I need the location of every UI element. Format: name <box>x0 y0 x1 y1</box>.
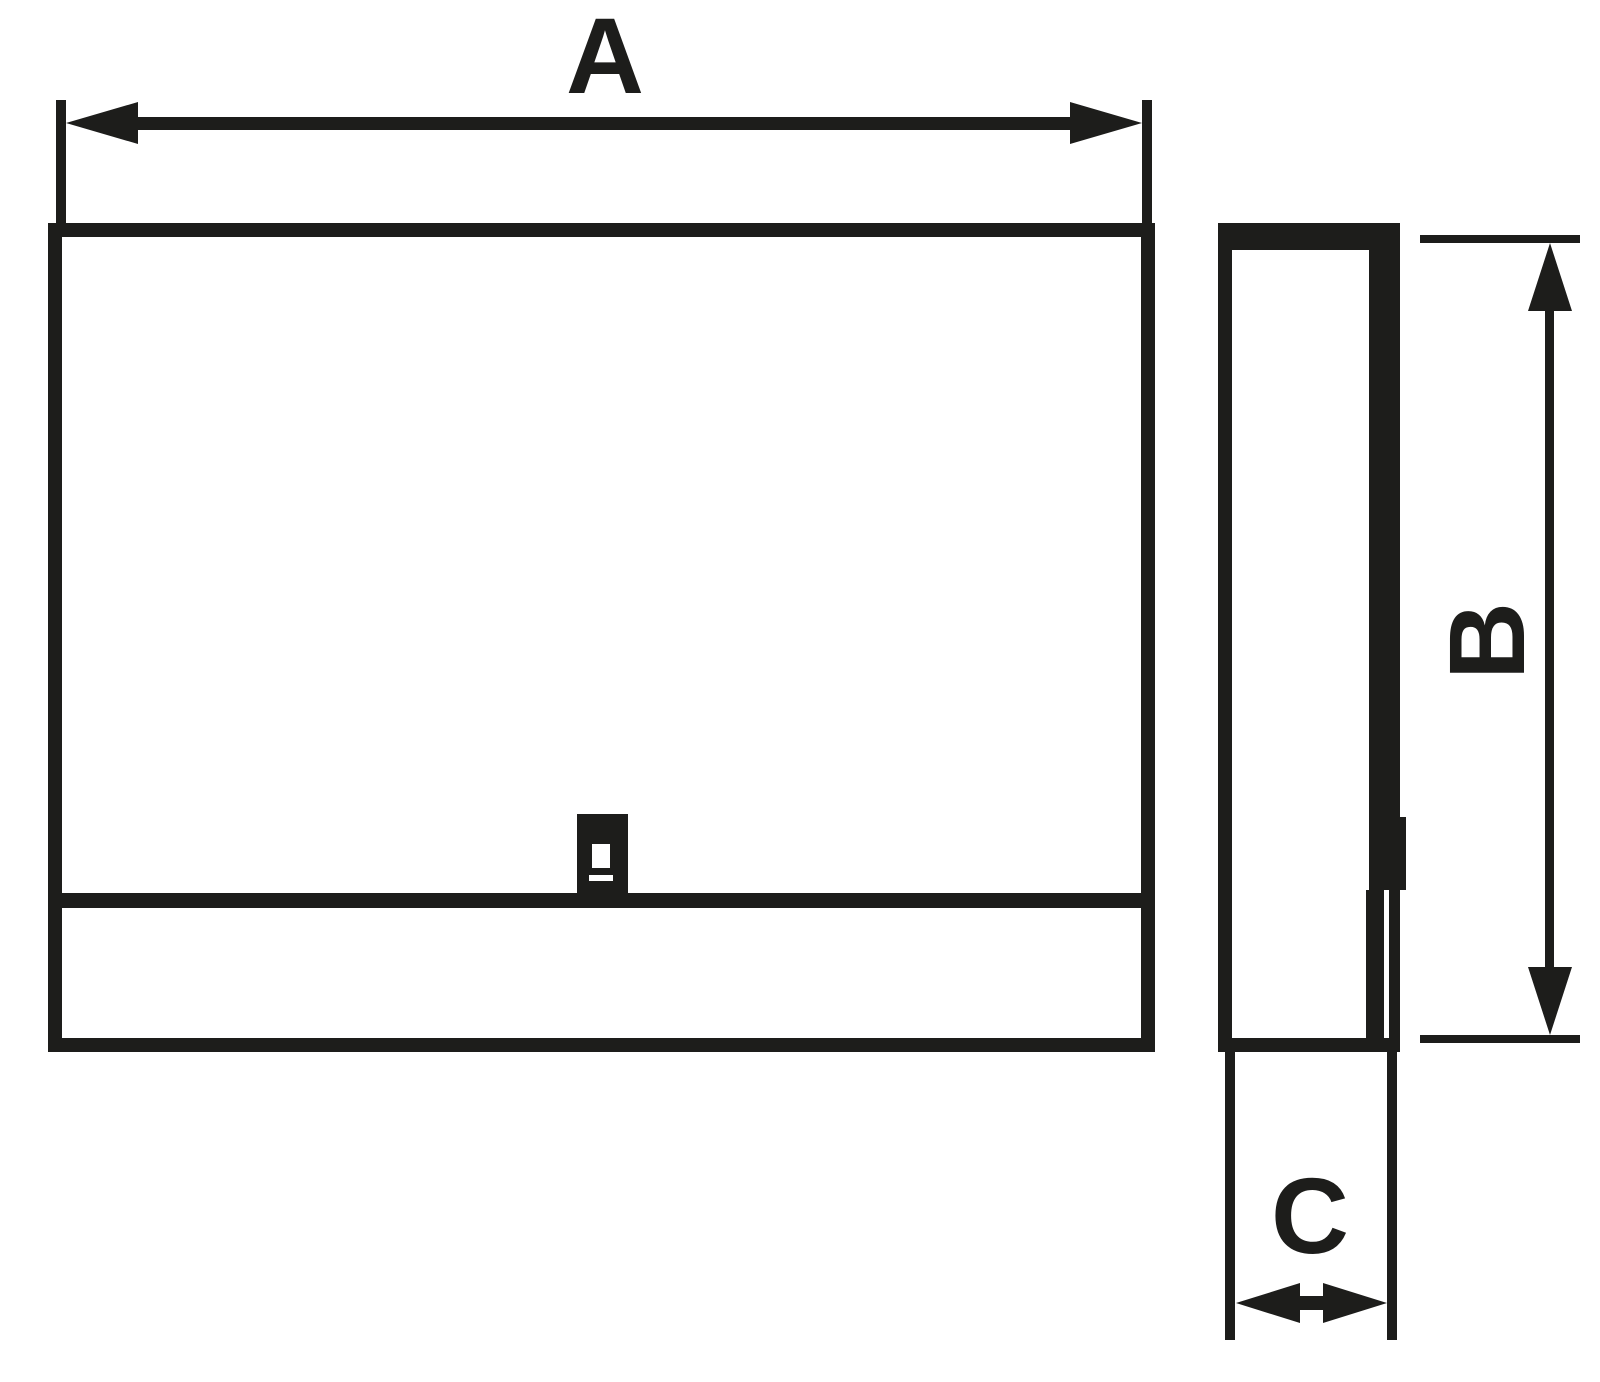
dim-a-extension-line-left <box>56 100 66 225</box>
front-view-outline <box>48 223 1155 1052</box>
side-view-back-inner-line <box>1366 890 1384 1038</box>
side-view-front-edge <box>1218 250 1232 1052</box>
dim-a-arrowhead-right-icon <box>1070 102 1142 144</box>
dim-c-arrowhead-right-icon <box>1323 1283 1387 1323</box>
side-view-back-edge <box>1369 250 1400 890</box>
lock-detail <box>577 814 628 893</box>
dim-b-arrowhead-bottom-icon <box>1528 967 1572 1035</box>
dim-a-extension-line-right <box>1142 100 1152 225</box>
dim-c-arrowhead-left-icon <box>1236 1283 1300 1323</box>
dim-a-line <box>130 117 1078 130</box>
dim-a-label: A <box>540 0 670 112</box>
dim-a-label-text: A <box>566 2 644 110</box>
dim-b-extension-line-top <box>1420 235 1580 243</box>
dim-b-arrowhead-top-icon <box>1528 243 1572 311</box>
dim-c-label: C <box>1245 1152 1375 1280</box>
dim-c-label-text: C <box>1271 1162 1349 1270</box>
dim-a-arrowhead-left-icon <box>66 102 138 144</box>
lock-keyhole <box>592 844 610 868</box>
dim-c-extension-line-left <box>1225 1052 1235 1340</box>
lock-slot <box>589 875 613 881</box>
dim-b-extension-line-bottom <box>1420 1035 1580 1043</box>
dimension-diagram: A B C <box>0 0 1600 1382</box>
side-view-back-outer-line <box>1389 890 1400 1038</box>
front-view-divider-line <box>48 893 1155 908</box>
dim-c-stem <box>1298 1296 1324 1310</box>
dim-c-extension-line-right <box>1387 1052 1397 1340</box>
dim-b-label: B <box>1417 571 1557 711</box>
dim-b-label-text: B <box>1433 602 1541 680</box>
side-view-mount-bracket <box>1400 817 1406 890</box>
side-view-top-edge <box>1218 223 1400 250</box>
side-view-bottom-edge <box>1218 1038 1400 1052</box>
dim-b-line <box>1545 305 1554 972</box>
